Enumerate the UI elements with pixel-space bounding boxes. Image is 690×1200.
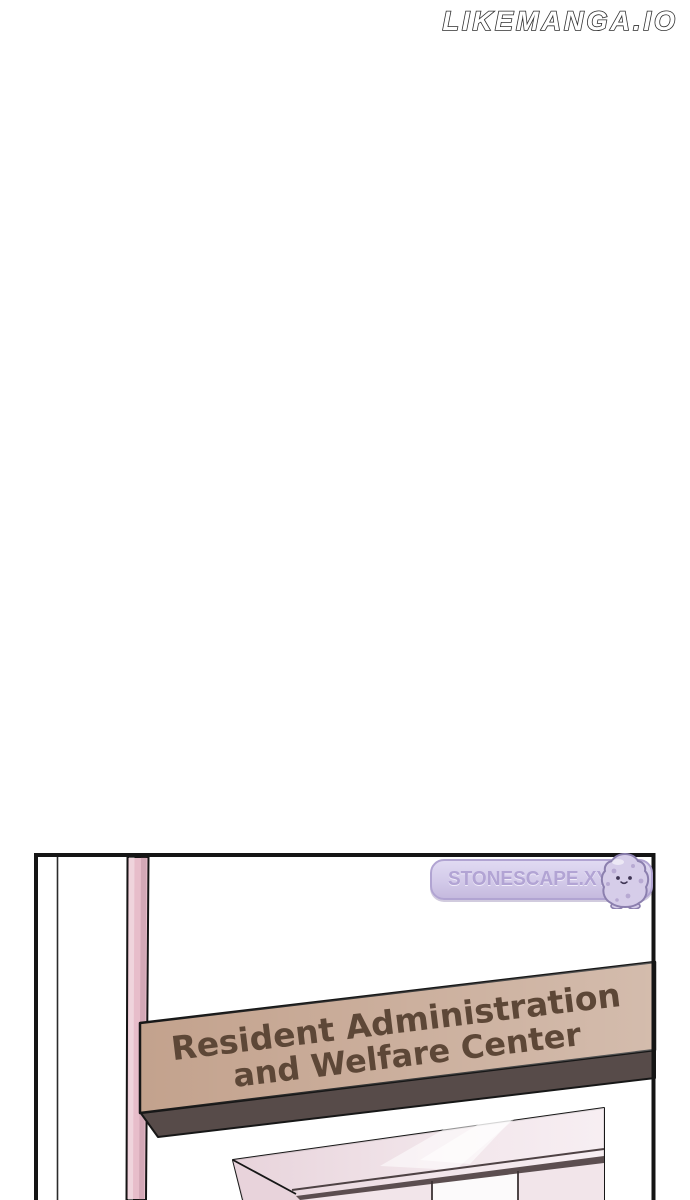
stone-mascot-icon (594, 851, 656, 909)
